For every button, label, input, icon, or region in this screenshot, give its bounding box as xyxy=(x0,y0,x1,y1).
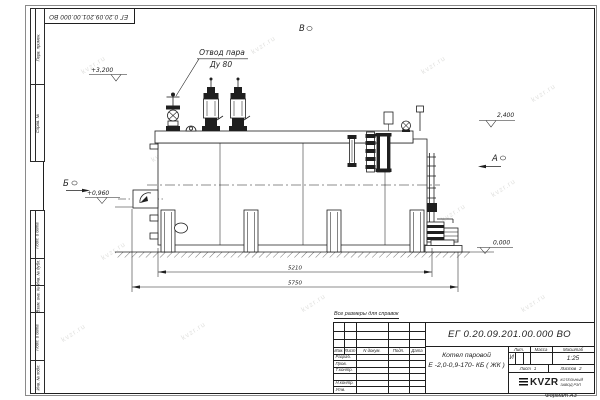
callout-text: Ду 80 xyxy=(209,60,232,69)
svg-text:+0,960: +0,960 xyxy=(87,190,109,197)
support-leg xyxy=(410,210,424,252)
format-label: Формат А3 xyxy=(545,393,577,399)
downcomer-pipe xyxy=(427,153,437,222)
safety-valve xyxy=(229,78,250,132)
valve-column xyxy=(366,132,376,172)
sheets-number: 2 xyxy=(579,366,581,371)
reference-note: Все размеры для справок xyxy=(334,311,399,319)
level-indicator xyxy=(376,133,392,172)
sheet-label: Лист xyxy=(520,366,531,371)
pump-foundation xyxy=(431,240,454,246)
sheet-number-cell: Лист 1 xyxy=(508,364,548,372)
dimension-value: 5750 xyxy=(288,281,302,287)
tb-row-utv: Утв. xyxy=(334,386,358,393)
product-name: Котел паровой Е -2,0-0,9-170- КБ ( ЖК ) xyxy=(425,346,508,376)
svg-text:В: В xyxy=(299,24,305,34)
vent-rod xyxy=(417,106,424,131)
tb-header-data: Дата xyxy=(409,347,425,354)
logo-subtitle-line: ЗАВОД РЭП xyxy=(560,383,583,387)
svg-text:Б: Б xyxy=(63,179,69,189)
elevation-mark-3200: +3,200 xyxy=(89,67,127,81)
logo-subtitle: КОТЕЛЬНЫЙ ЗАВОД РЭП xyxy=(560,378,583,387)
tb-line xyxy=(334,339,425,340)
elevation-mark-2400: 2,400 xyxy=(479,112,515,127)
tb-line xyxy=(334,373,425,374)
tb-line xyxy=(523,352,524,364)
tb-line xyxy=(334,331,425,332)
tb-line xyxy=(388,323,389,393)
steam-outlet-valve xyxy=(166,93,180,132)
product-line1: Котел паровой xyxy=(442,351,491,361)
view-arrow-a: А xyxy=(478,154,506,168)
tb-header-podp: Подп. xyxy=(388,347,409,354)
tb-row-tkontr: Т.контр. xyxy=(334,367,358,374)
title-block: Изм. Лист N докум. Подп. Дата Разраб. Пр… xyxy=(333,322,595,394)
tb-header-ndoc: N докум. xyxy=(356,347,388,354)
tb-header-massa: Масса xyxy=(530,346,552,352)
support-leg xyxy=(244,210,258,252)
sheets-label: Листов xyxy=(560,366,576,371)
ground-line xyxy=(115,252,494,258)
support-leg xyxy=(327,210,341,252)
support-leg xyxy=(161,210,175,252)
svg-text:+3,200: +3,200 xyxy=(91,67,113,74)
elevation-mark-0000: 0,000 xyxy=(477,240,513,254)
elevation-mark-0960: +0,960 xyxy=(85,190,120,204)
drawing-sheet: { "colors": { "line": "#1f1f1f", "paper"… xyxy=(0,0,600,400)
svg-text:А: А xyxy=(491,154,498,164)
manhole xyxy=(175,223,188,233)
burner-unit xyxy=(115,190,163,208)
view-arrow-b: Б xyxy=(63,179,90,192)
product-line2: Е -2,0-0,9-170- КБ ( ЖК ) xyxy=(428,361,504,371)
view-arrow-v: В xyxy=(299,24,312,34)
company-logo: KVZR КОТЕЛЬНЫЙ ЗАВОД РЭП xyxy=(508,372,594,393)
svg-text:0,000: 0,000 xyxy=(493,240,510,247)
dome-fitting xyxy=(186,126,196,131)
logo-text: KVZR xyxy=(530,377,558,388)
svg-text:2,400: 2,400 xyxy=(497,112,514,119)
logo-stripes-icon xyxy=(519,378,528,387)
leader-line xyxy=(176,59,199,96)
doc-number: ЕГ 0.20.09.201.00.000 ВО xyxy=(425,323,594,346)
lit-value: И xyxy=(508,352,515,364)
pump-foundation xyxy=(425,246,462,253)
sheet-number: 1 xyxy=(534,366,536,371)
tb-line xyxy=(515,352,516,364)
dimension-value: 5210 xyxy=(288,266,302,272)
feed-pump xyxy=(425,219,462,252)
nameplate xyxy=(384,112,393,131)
small-valve xyxy=(402,121,411,132)
tb-line xyxy=(409,323,410,393)
safety-valve xyxy=(202,78,223,132)
logo-subtitle-line: КОТЕЛЬНЫЙ xyxy=(560,378,583,382)
sheets-total-cell: Листов 2 xyxy=(548,364,594,372)
boiler-body xyxy=(147,131,440,245)
scale-value: 1:25 xyxy=(552,352,594,364)
callout-text: Отвод пара xyxy=(199,48,245,57)
